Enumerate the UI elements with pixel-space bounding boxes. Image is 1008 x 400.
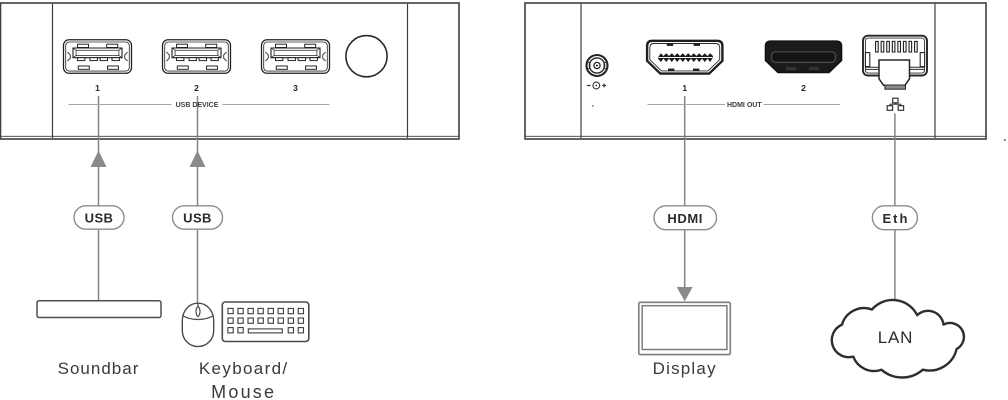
svg-text:USB DEVICE: USB DEVICE: [176, 102, 219, 109]
svg-text:3: 3: [293, 83, 298, 93]
svg-text:1: 1: [95, 83, 100, 93]
svg-text:HDMI: HDMI: [667, 211, 703, 226]
svg-text:1: 1: [682, 83, 687, 93]
svg-text:Eth: Eth: [883, 211, 910, 226]
svg-text:Mouse: Mouse: [211, 382, 276, 400]
svg-text:USB: USB: [183, 211, 212, 226]
svg-text:USB: USB: [85, 211, 114, 226]
svg-text:Soundbar: Soundbar: [58, 359, 140, 378]
svg-text:HDMI OUT: HDMI OUT: [727, 102, 762, 109]
svg-text:2: 2: [194, 83, 199, 93]
svg-text:Keyboard/: Keyboard/: [199, 359, 289, 378]
svg-text:Display: Display: [653, 359, 717, 378]
svg-text:2: 2: [801, 83, 806, 93]
svg-text:LAN: LAN: [878, 328, 913, 347]
